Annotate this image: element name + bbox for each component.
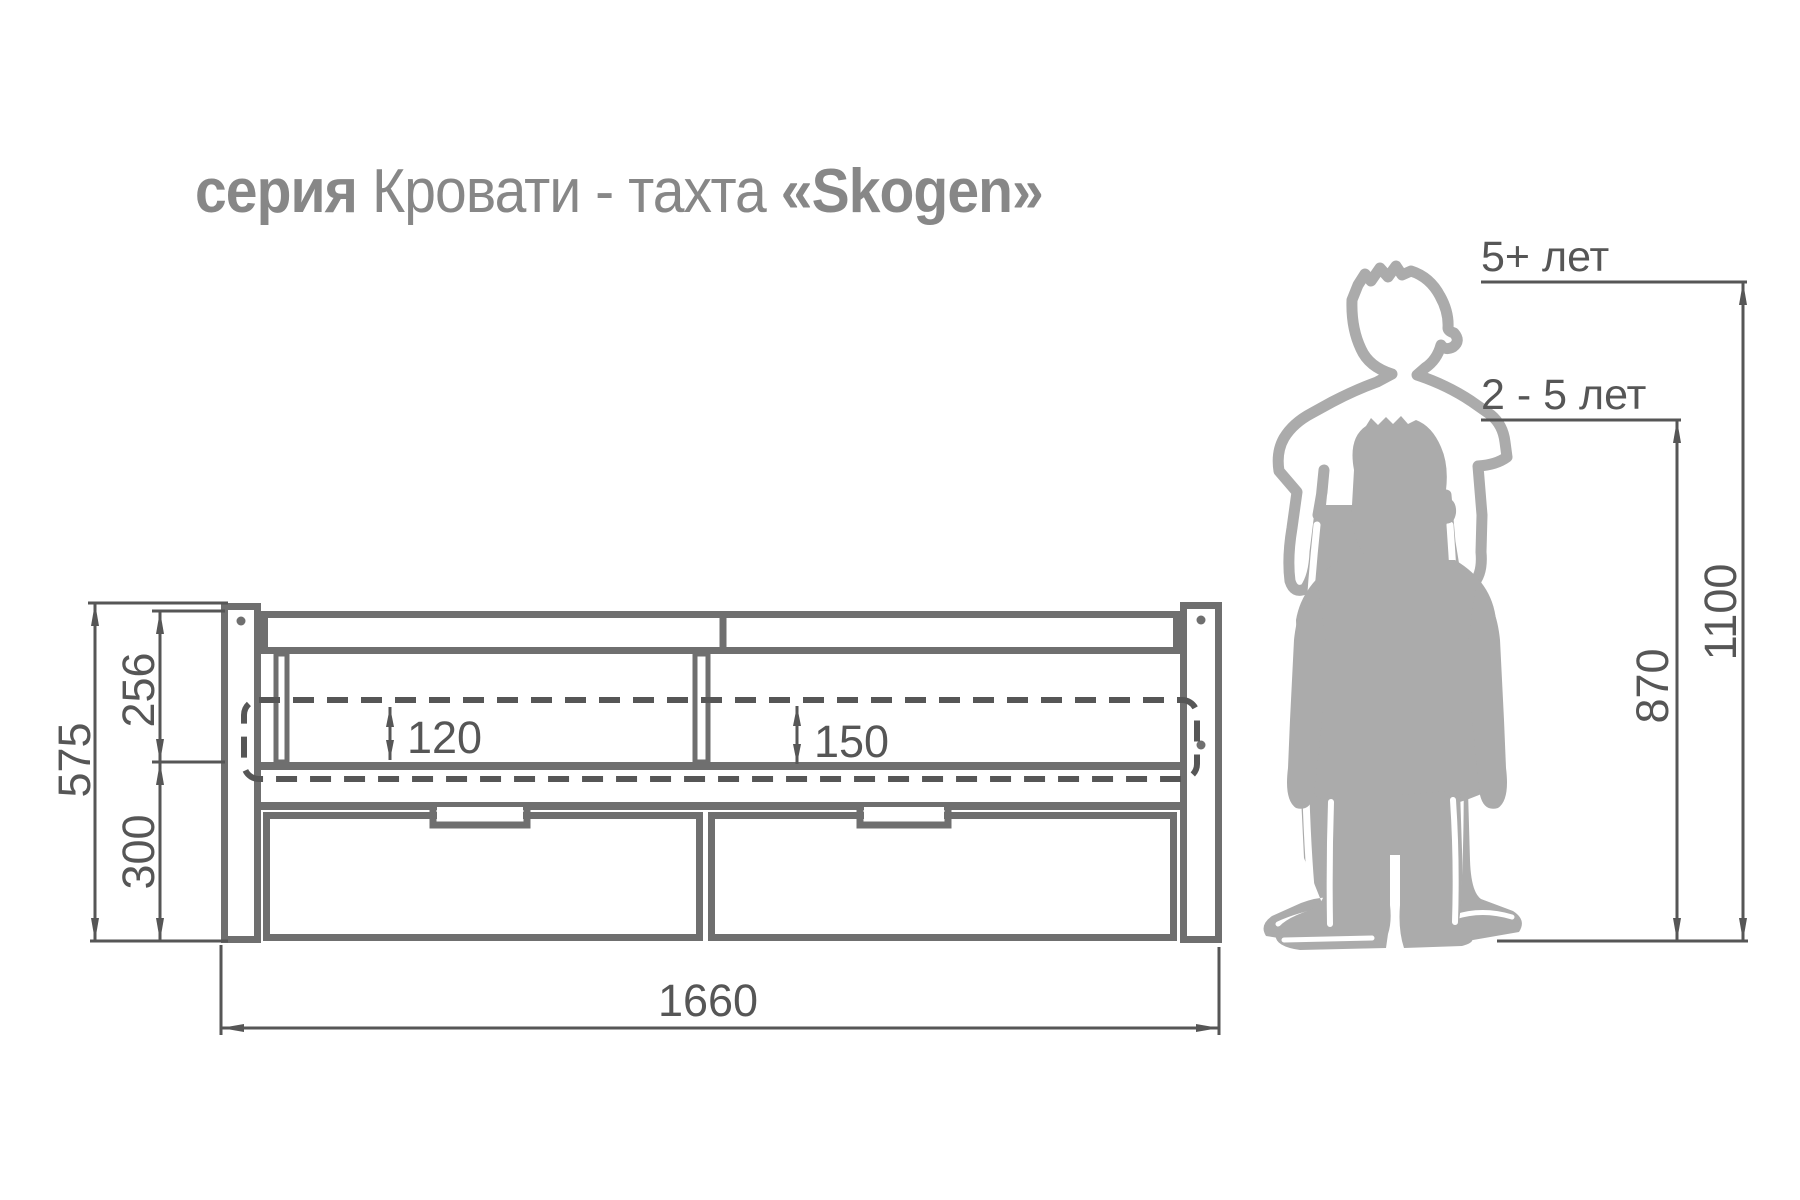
age-label-older: 5+ лет — [1481, 233, 1609, 281]
drawer-left-handle-notch — [433, 807, 527, 825]
bed-right-post — [1184, 606, 1219, 940]
title-series-word: серия — [195, 156, 357, 226]
dimension-value-1660: 1660 — [658, 975, 758, 1026]
bed-left-post — [225, 607, 258, 940]
bed-frame-rail — [261, 802, 1180, 810]
drawer-left — [267, 816, 700, 938]
dimension-value-1100: 1100 — [1695, 564, 1746, 661]
title-series-name: «Skogen» — [781, 156, 1043, 226]
bed-diagram: серия Кровати - тахта «Skogen» — [0, 0, 1800, 1200]
title-product-type: Кровати - тахта — [357, 156, 781, 226]
age-guide-group: 5+ лет 2 - 5 лет 1100 870 — [1481, 233, 1748, 941]
drawer-right — [712, 816, 1174, 938]
diagram-page: серия Кровати - тахта «Skogen» — [0, 0, 1800, 1200]
dimension-bottom-group: 1660 — [221, 945, 1219, 1035]
screw-dot — [237, 617, 246, 626]
dimension-value-870: 870 — [1627, 648, 1678, 723]
dimension-value-256: 256 — [113, 652, 164, 727]
dimension-value-150: 150 — [814, 716, 889, 767]
children-silhouettes — [1264, 266, 1522, 950]
dimension-inner-group: 120 150 — [386, 706, 889, 767]
age-label-younger: 2 - 5 лет — [1481, 371, 1646, 419]
dimension-left-group: 575 256 300 — [49, 603, 228, 941]
bed-drawing — [225, 606, 1219, 940]
svg-text:серия Кровати - тахта «Skogen»: серия Кровати - тахта «Skogen» — [195, 156, 1043, 226]
bed-platform-bar — [261, 762, 1180, 770]
screw-dot — [1197, 741, 1206, 750]
dimension-value-300: 300 — [113, 814, 164, 889]
bed-back-plank-left — [276, 654, 287, 762]
drawer-right-handle-notch — [860, 807, 948, 825]
page-title: серия Кровати - тахта «Skogen» — [195, 156, 1043, 226]
dimension-value-575: 575 — [49, 722, 100, 797]
screw-dot — [1197, 616, 1206, 625]
bed-back-plank-middle — [695, 654, 708, 762]
dimension-value-120: 120 — [407, 712, 482, 763]
